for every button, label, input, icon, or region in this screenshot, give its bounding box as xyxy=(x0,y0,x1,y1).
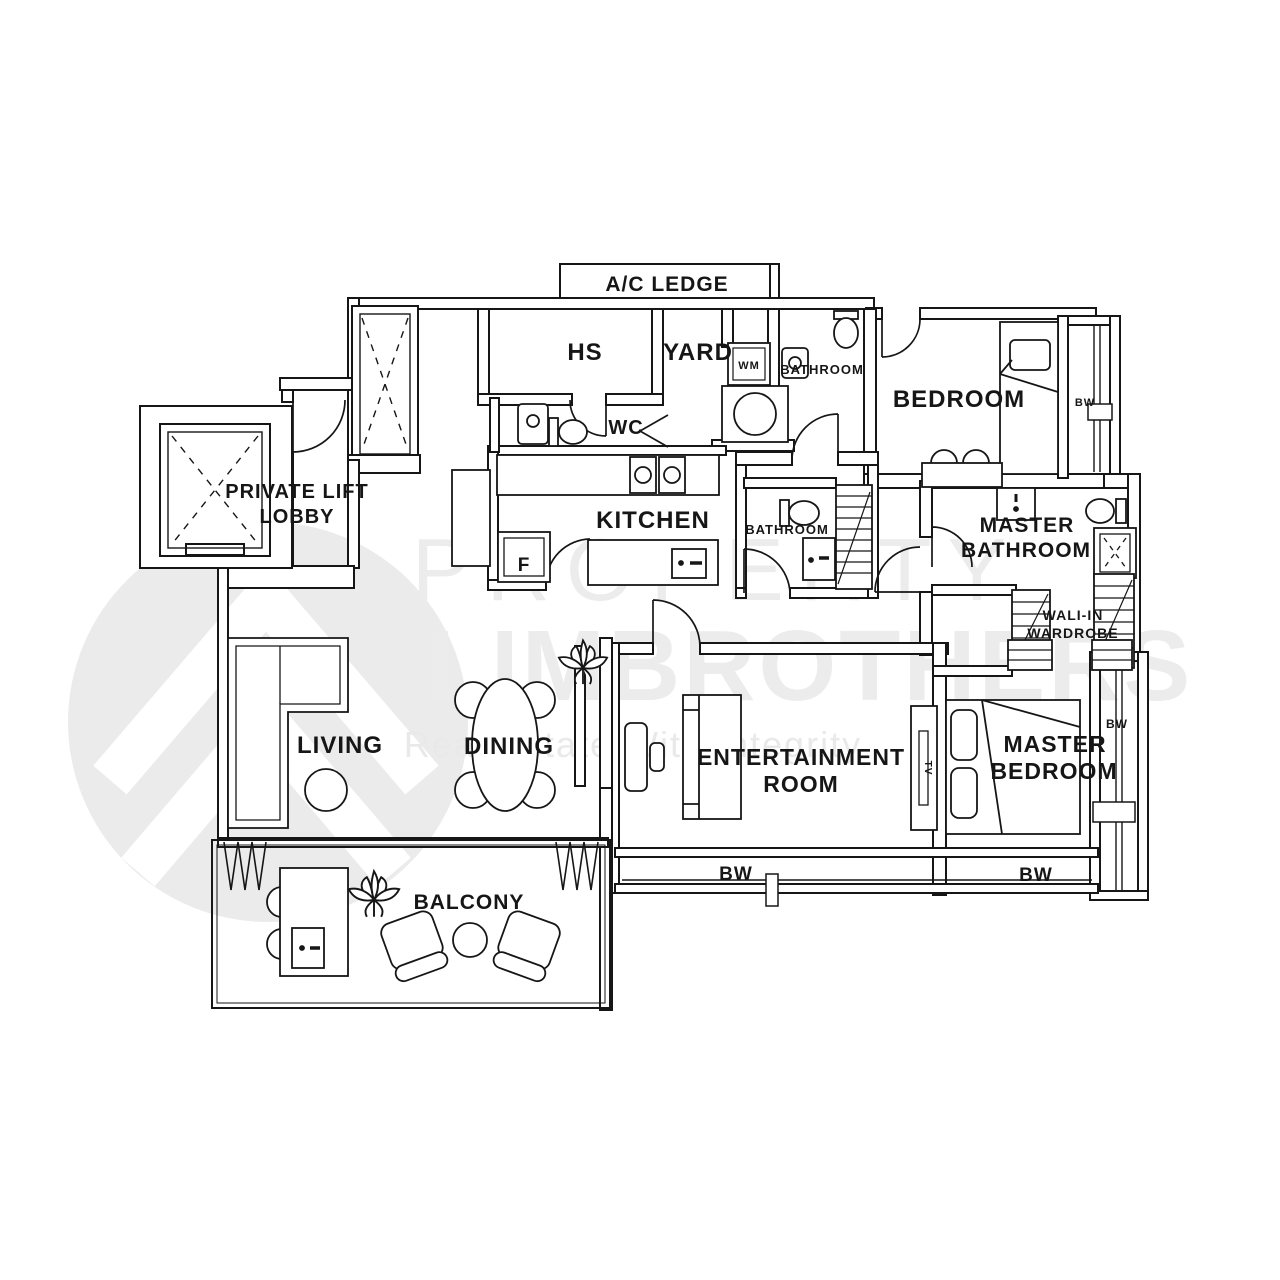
bathroom-mid-sink-icon xyxy=(803,538,835,580)
label-bw-entertainment: BW xyxy=(719,864,753,885)
label-bw-master-right: BW xyxy=(1106,717,1128,731)
floorplan-page: PROPERTY LIMBROTHERS Real Estate With In… xyxy=(0,0,1280,1280)
dryer-icon xyxy=(722,386,788,442)
wc-sink-icon xyxy=(518,404,548,444)
label-bw-bedroom: BW xyxy=(1075,397,1095,409)
label-wc: WC xyxy=(608,417,643,439)
label-tv: TV xyxy=(922,761,933,776)
label-yard: YARD xyxy=(663,339,733,366)
label-bedroom: BEDROOM xyxy=(893,386,1025,413)
label-master-bed-1: MASTER xyxy=(1003,731,1106,757)
label-fridge: F xyxy=(518,555,531,576)
label-wardrobe-1: WALI-IN xyxy=(1043,607,1104,623)
foyer-cabinet xyxy=(452,470,490,566)
kitchen-island xyxy=(588,540,718,585)
shower-icon xyxy=(1094,528,1136,578)
label-master-bath-2: BATHROOM xyxy=(961,539,1091,562)
label-ac-ledge: A/C LEDGE xyxy=(605,273,728,296)
label-dining: DINING xyxy=(464,733,554,760)
label-private-lift-2: LOBBY xyxy=(260,506,335,528)
label-wm: WM xyxy=(738,360,760,372)
linen-shelf xyxy=(836,485,872,589)
label-private-lift-1: PRIVATE LIFT xyxy=(225,481,368,503)
wc-toilet-icon xyxy=(549,418,587,446)
label-entertainment-2: ROOM xyxy=(763,771,839,797)
label-bathroom-top: BATHROOM xyxy=(780,362,864,377)
label-wardrobe-2: WARDROBE xyxy=(1027,625,1118,641)
label-kitchen: KITCHEN xyxy=(596,507,710,534)
bathroom-top-toilet-icon xyxy=(834,311,858,348)
label-hs: HS xyxy=(567,339,602,366)
floorplan-drawing: PROPERTY LIMBROTHERS Real Estate With In… xyxy=(0,0,1280,1280)
kitchen-counter xyxy=(497,455,719,495)
balcony-bar xyxy=(267,868,348,976)
label-entertainment-1: ENTERTAINMENT xyxy=(697,744,905,770)
label-bw-master-bottom: BW xyxy=(1019,865,1053,886)
label-master-bath-1: MASTER xyxy=(980,514,1075,537)
label-master-bed-2: BEDROOM xyxy=(990,758,1117,784)
label-bathroom-mid: BATHROOM xyxy=(745,522,829,537)
label-balcony: BALCONY xyxy=(414,891,525,914)
master-bath-toilet-icon xyxy=(1086,499,1126,523)
label-living: LIVING xyxy=(297,732,383,759)
